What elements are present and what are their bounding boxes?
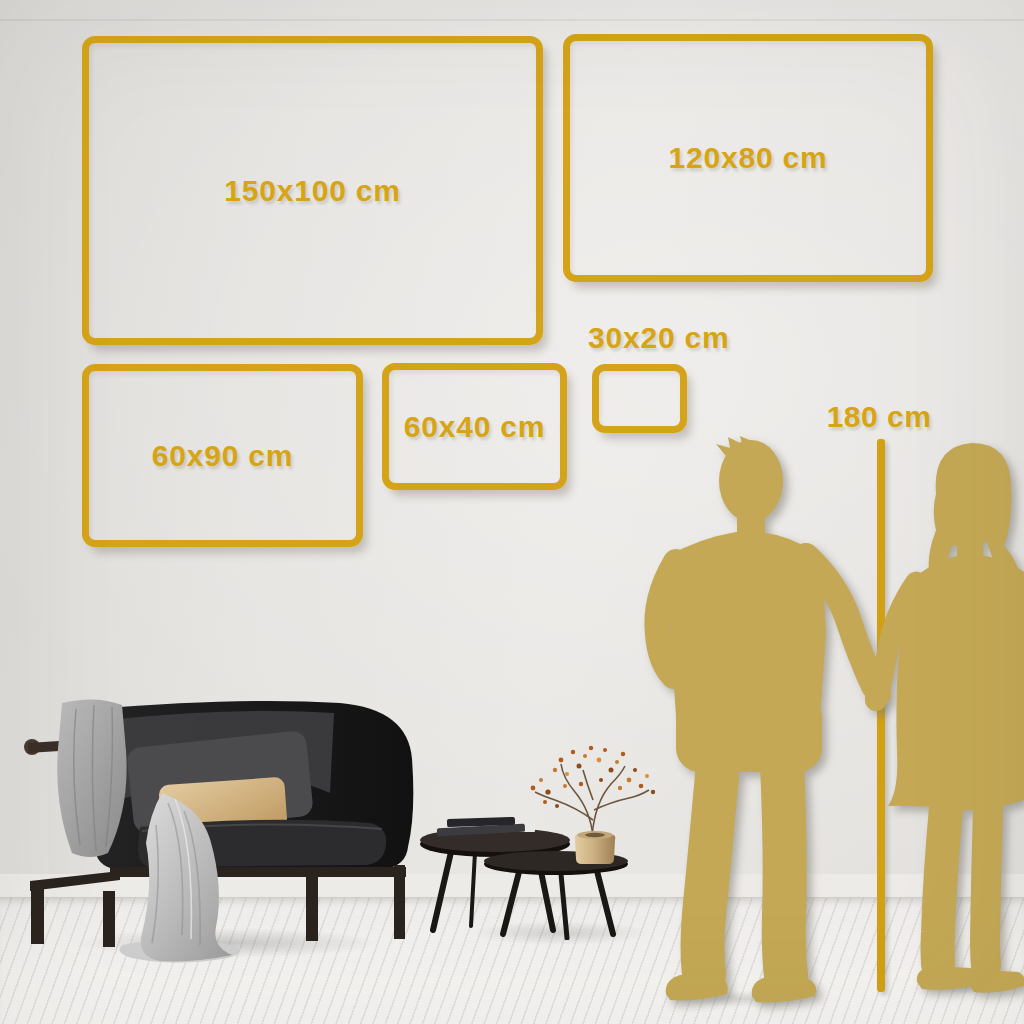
size-frame-60x90: 60x90 cm <box>82 364 363 547</box>
height-reference-label: 180 cm <box>818 400 940 434</box>
couple-silhouette <box>640 434 1024 1006</box>
size-frame-120x80: 120x80 cm <box>563 34 933 282</box>
size-label-60x40: 60x40 cm <box>404 410 546 444</box>
size-frame-30x20 <box>592 364 687 433</box>
wall-seam-line <box>0 19 1024 21</box>
brass-vase <box>575 831 616 864</box>
big-table <box>420 828 570 930</box>
dried-branch <box>535 764 649 836</box>
size-guide-scene: 150x100 cm 120x80 cm 60x90 cm 60x40 cm 3… <box>0 0 1024 1024</box>
size-frame-150x100: 150x100 cm <box>82 36 543 345</box>
size-label-30x20: 30x20 cm <box>588 321 730 355</box>
man-silhouette <box>657 436 891 1002</box>
woman-silhouette <box>865 443 1024 993</box>
size-label-60x90: 60x90 cm <box>152 439 294 473</box>
size-frame-60x40: 60x40 cm <box>382 363 567 490</box>
small-table <box>484 851 628 938</box>
sofa <box>10 695 440 963</box>
size-label-150x100: 150x100 cm <box>224 174 401 208</box>
size-label-120x80: 120x80 cm <box>668 141 827 175</box>
